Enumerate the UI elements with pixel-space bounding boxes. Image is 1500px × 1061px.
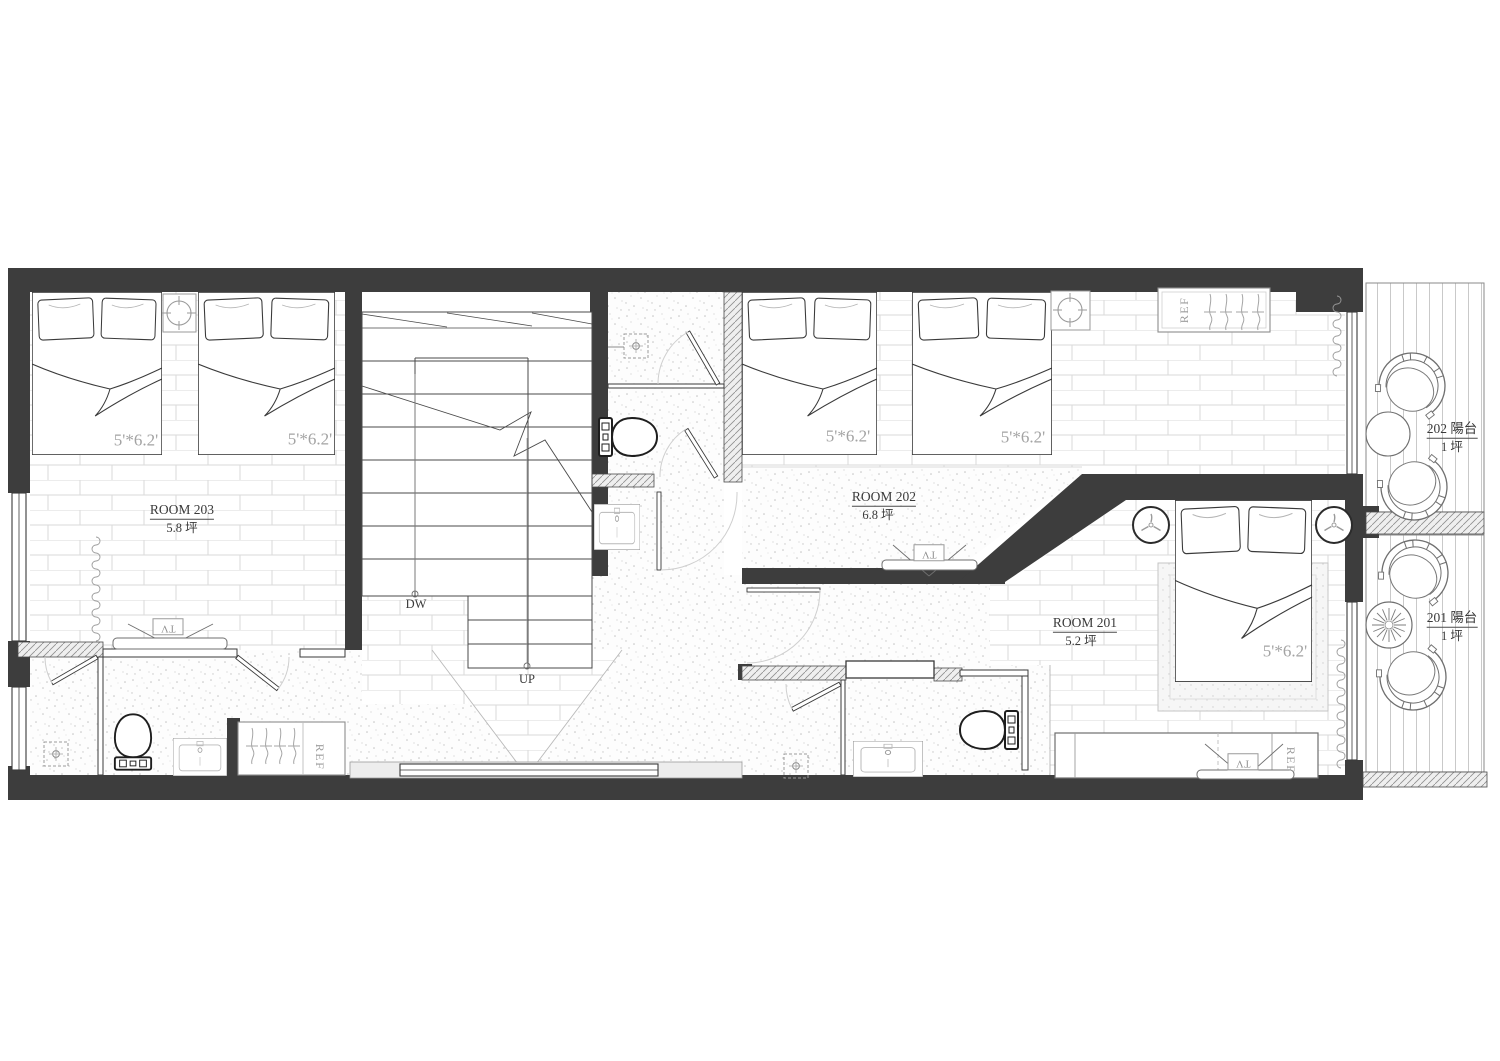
bed-size-label-5: 5'*6.2'	[1263, 643, 1307, 660]
wall-stair	[345, 292, 362, 650]
floor-plan-drawing	[0, 0, 1500, 1061]
side-table-fan-right	[1316, 507, 1352, 543]
bed-size-label-3: 5'*6.2'	[826, 428, 870, 445]
wall-top-right	[1296, 268, 1363, 312]
balcony-window-201	[1347, 602, 1357, 760]
tv-console-202	[882, 560, 977, 570]
balcony202-name-label: 202 陽台	[1427, 422, 1478, 439]
glass-partition-201	[1022, 676, 1028, 770]
stair-down-label: DW	[406, 598, 427, 611]
balcony201-area-label: 1 坪	[1441, 630, 1463, 643]
room202-area-label: 6.8 坪	[862, 509, 893, 522]
bed-size-label-1: 5'*6.2'	[114, 432, 158, 449]
bed-size-label-4: 5'*6.2'	[1001, 429, 1045, 446]
tv-console-203	[113, 638, 227, 649]
wall-left-upper	[8, 268, 30, 493]
fridge-label-room202: REF	[1178, 297, 1190, 324]
stair-up-label: UP	[519, 673, 535, 686]
closet-203	[238, 722, 345, 775]
room203-name-label: ROOM 203	[150, 503, 214, 520]
wall-bottom	[8, 775, 1363, 800]
toilet-201	[960, 711, 1018, 749]
room201-area-label: 5.2 坪	[1065, 635, 1096, 648]
cabinet-201	[1055, 733, 1318, 779]
tv-console-201	[1197, 770, 1294, 779]
room202-name-label: ROOM 202	[852, 490, 916, 507]
vanity-203	[173, 738, 227, 776]
balcony202-area-label: 1 坪	[1441, 441, 1463, 454]
balcony-door-202	[1347, 312, 1357, 474]
bath201-door-frame	[846, 661, 934, 678]
window-bottom	[350, 762, 742, 778]
room201-name-label: ROOM 201	[1053, 616, 1117, 633]
toilet-203	[115, 714, 151, 769]
window-left-1	[12, 493, 26, 641]
side-table-fan-left	[1133, 507, 1169, 543]
tv-label-room202: TV	[914, 545, 945, 562]
bed-size-label-2: 5'*6.2'	[288, 431, 332, 448]
floor-plan-page: ROOM 203 5.8 坪 ROOM 202 6.8 坪 ROOM 201 5…	[0, 0, 1500, 1061]
balcony201-plant-table	[1366, 602, 1412, 648]
balcony202-table	[1366, 412, 1410, 456]
fridge-label-room201: REF	[1285, 747, 1297, 774]
toilet-center	[599, 418, 657, 456]
vanity-center	[594, 504, 640, 550]
tv-label-room201: TV	[1228, 754, 1259, 771]
balcony201-name-label: 201 陽台	[1427, 611, 1478, 628]
fridge-label-room203: REF	[314, 744, 326, 771]
door-leaf-room201	[747, 588, 820, 592]
closet-202	[1158, 288, 1270, 332]
room203-area-label: 5.8 坪	[166, 522, 197, 535]
door-leaf-bath-center	[657, 492, 661, 570]
vanity-201	[853, 741, 923, 777]
window-left-2	[12, 687, 26, 770]
tv-label-room203: TV	[153, 619, 184, 636]
